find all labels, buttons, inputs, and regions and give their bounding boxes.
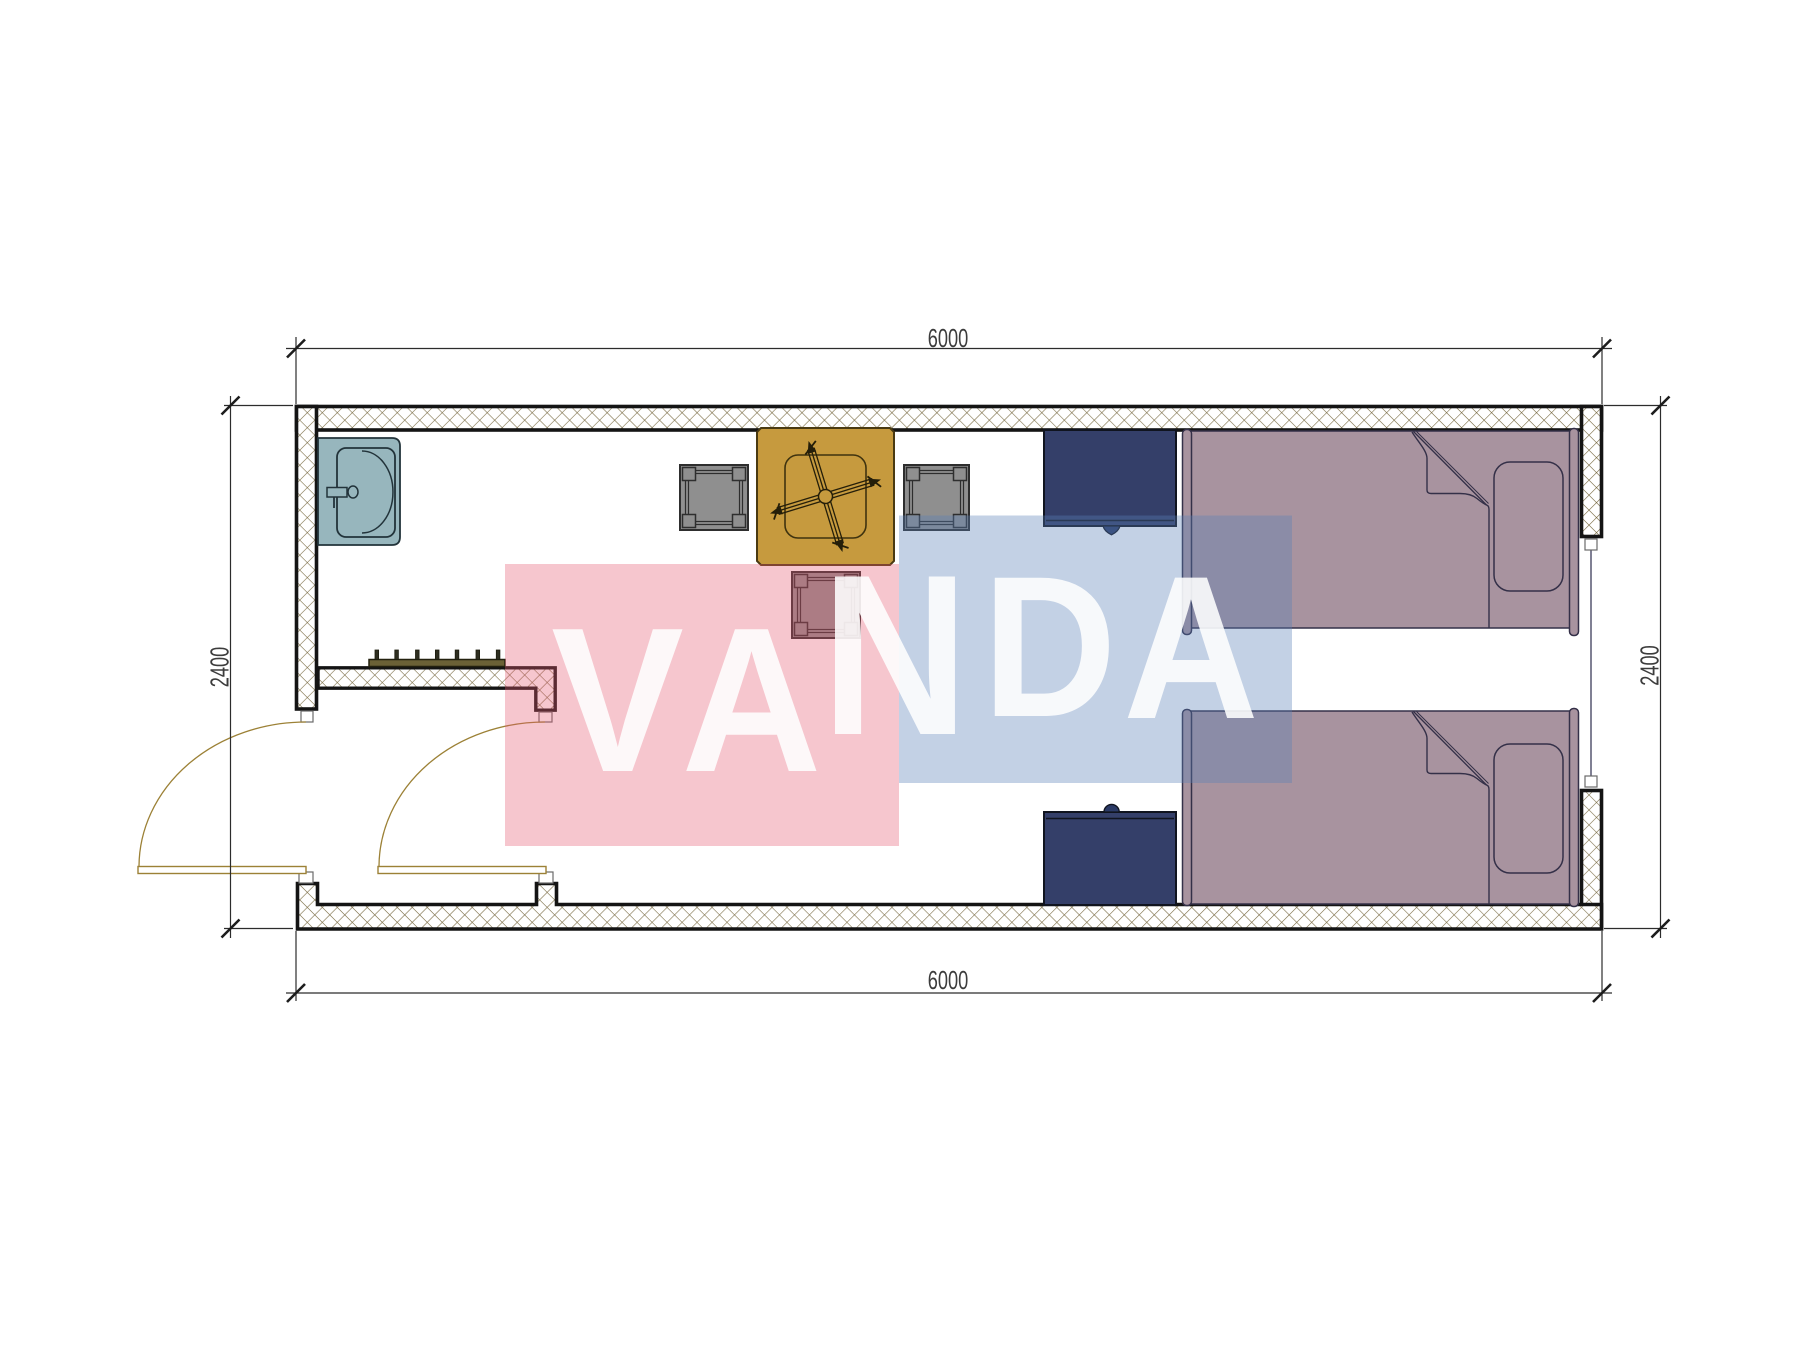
svg-text:A: A (681, 586, 821, 816)
svg-text:V: V (551, 585, 684, 815)
svg-text:N: N (821, 527, 968, 783)
svg-text:A: A (1123, 533, 1259, 762)
svg-text:2400: 2400 (206, 647, 235, 687)
svg-text:6000: 6000 (928, 324, 968, 353)
svg-text:6000: 6000 (928, 966, 968, 995)
svg-text:D: D (982, 535, 1116, 759)
svg-text:2400: 2400 (1635, 645, 1664, 685)
